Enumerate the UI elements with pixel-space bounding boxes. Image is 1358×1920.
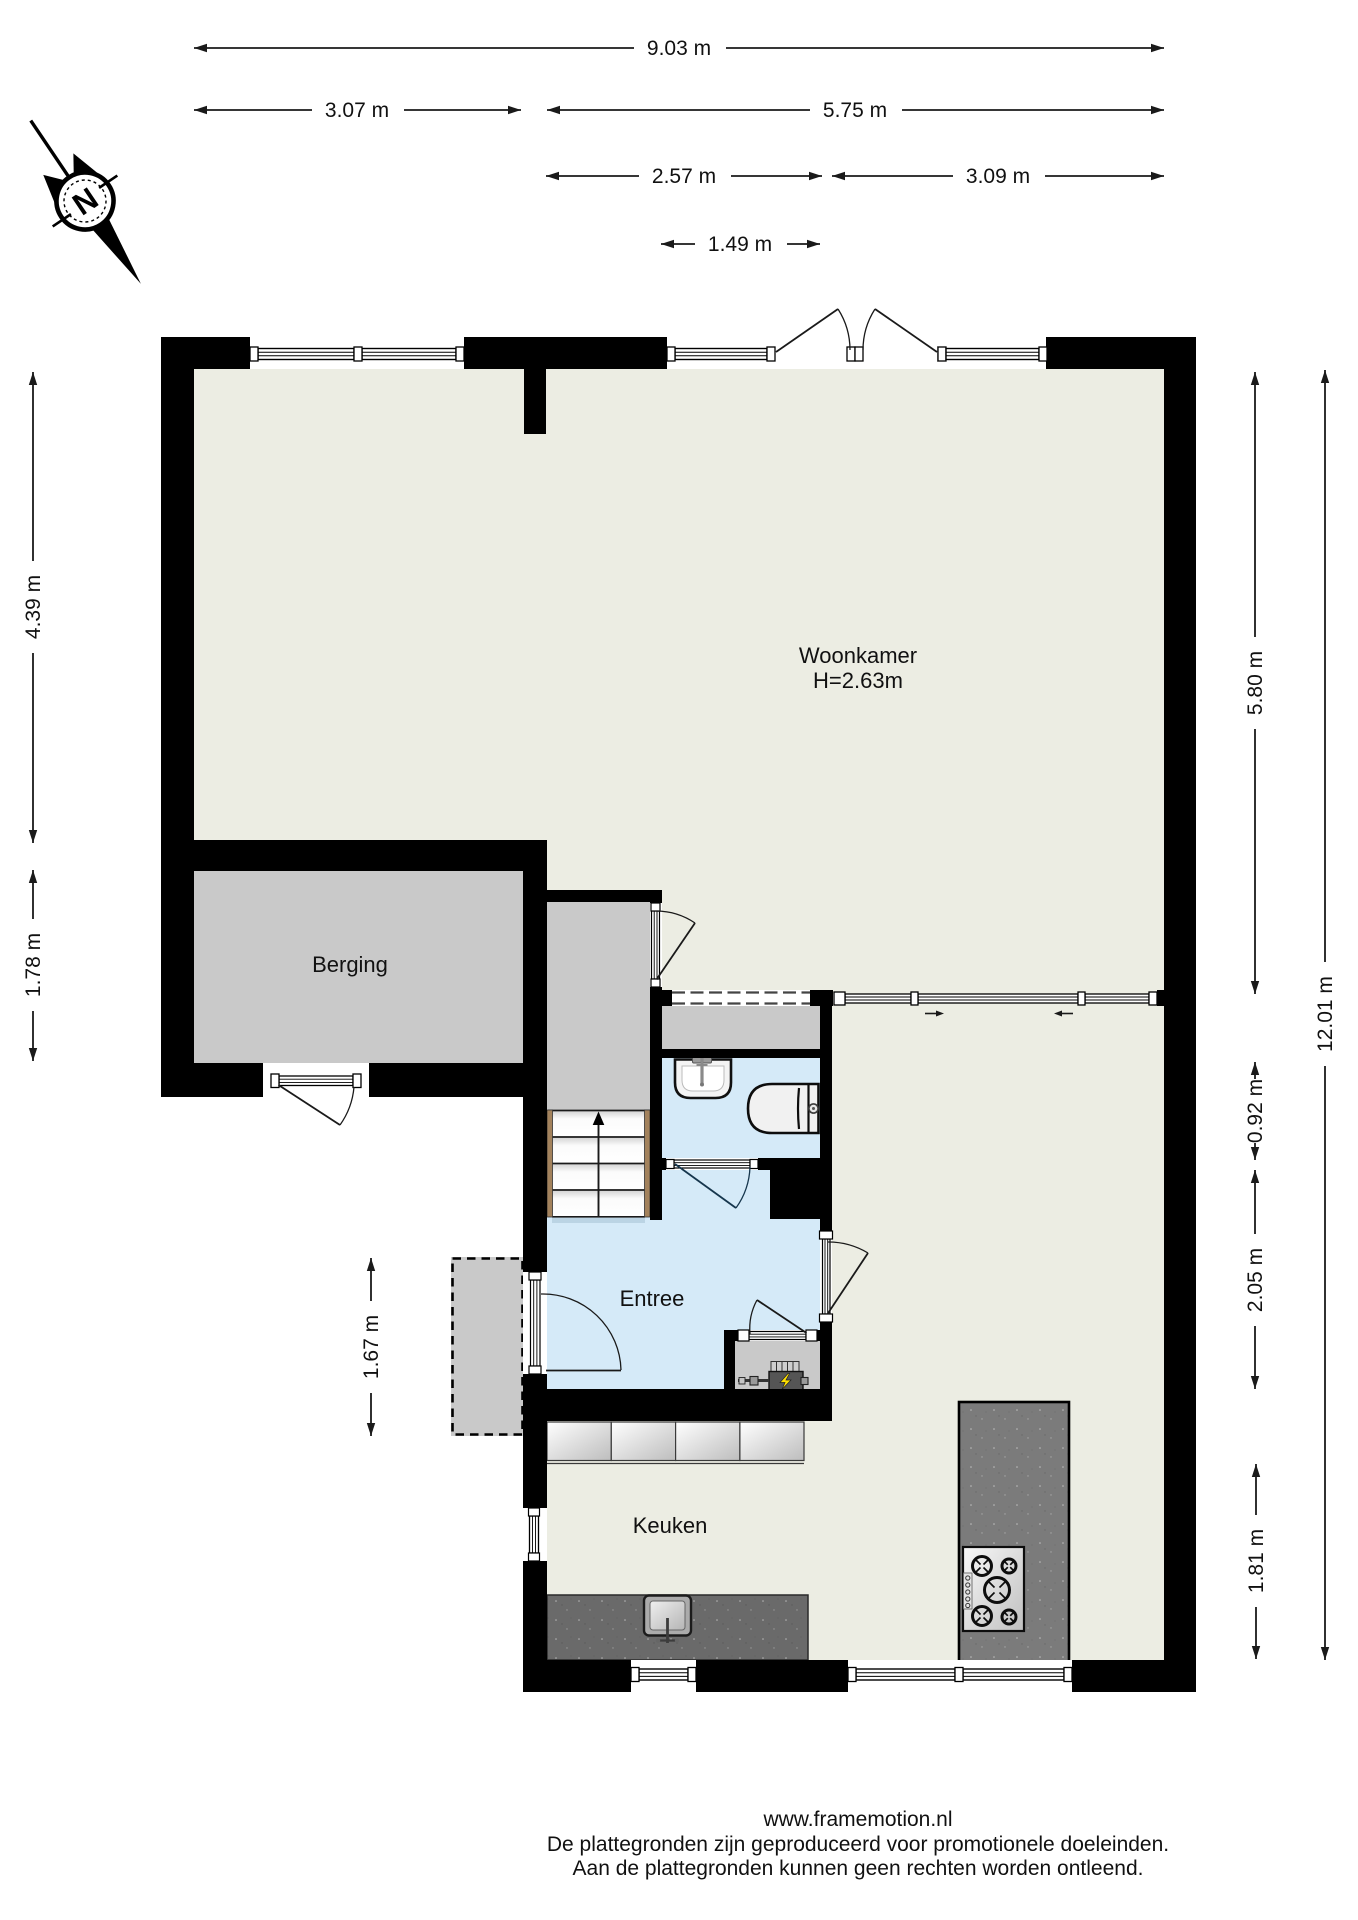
svg-text:Keuken: Keuken bbox=[633, 1513, 708, 1538]
svg-text:Entree: Entree bbox=[620, 1286, 685, 1311]
svg-text:5.75 m: 5.75 m bbox=[823, 99, 887, 122]
svg-text:1.49 m: 1.49 m bbox=[708, 233, 772, 256]
svg-text:1.81 m: 1.81 m bbox=[1245, 1529, 1268, 1593]
svg-text:12.01 m: 12.01 m bbox=[1314, 976, 1337, 1052]
svg-text:1.67 m: 1.67 m bbox=[360, 1315, 383, 1379]
svg-text:2.57 m: 2.57 m bbox=[652, 165, 716, 188]
svg-text:3.07 m: 3.07 m bbox=[325, 99, 389, 122]
svg-text:4.39 m: 4.39 m bbox=[22, 575, 45, 639]
svg-text:0.92 m: 0.92 m bbox=[1244, 1079, 1267, 1143]
svg-text:De plattegronden zijn geproduc: De plattegronden zijn geproduceerd voor … bbox=[547, 1833, 1169, 1856]
svg-text:3.09 m: 3.09 m bbox=[966, 165, 1030, 188]
svg-text:H=2.63m: H=2.63m bbox=[813, 668, 903, 693]
svg-text:9.03 m: 9.03 m bbox=[647, 37, 711, 60]
svg-text:www.framemotion.nl: www.framemotion.nl bbox=[762, 1808, 952, 1831]
svg-text:2.05 m: 2.05 m bbox=[1244, 1248, 1267, 1312]
svg-text:5.80 m: 5.80 m bbox=[1244, 651, 1267, 715]
svg-text:1.78 m: 1.78 m bbox=[22, 933, 45, 997]
svg-text:Woonkamer: Woonkamer bbox=[799, 643, 917, 668]
svg-text:Berging: Berging bbox=[312, 952, 388, 977]
svg-text:Aan de plattegronden kunnen ge: Aan de plattegronden kunnen geen rechten… bbox=[573, 1857, 1144, 1880]
